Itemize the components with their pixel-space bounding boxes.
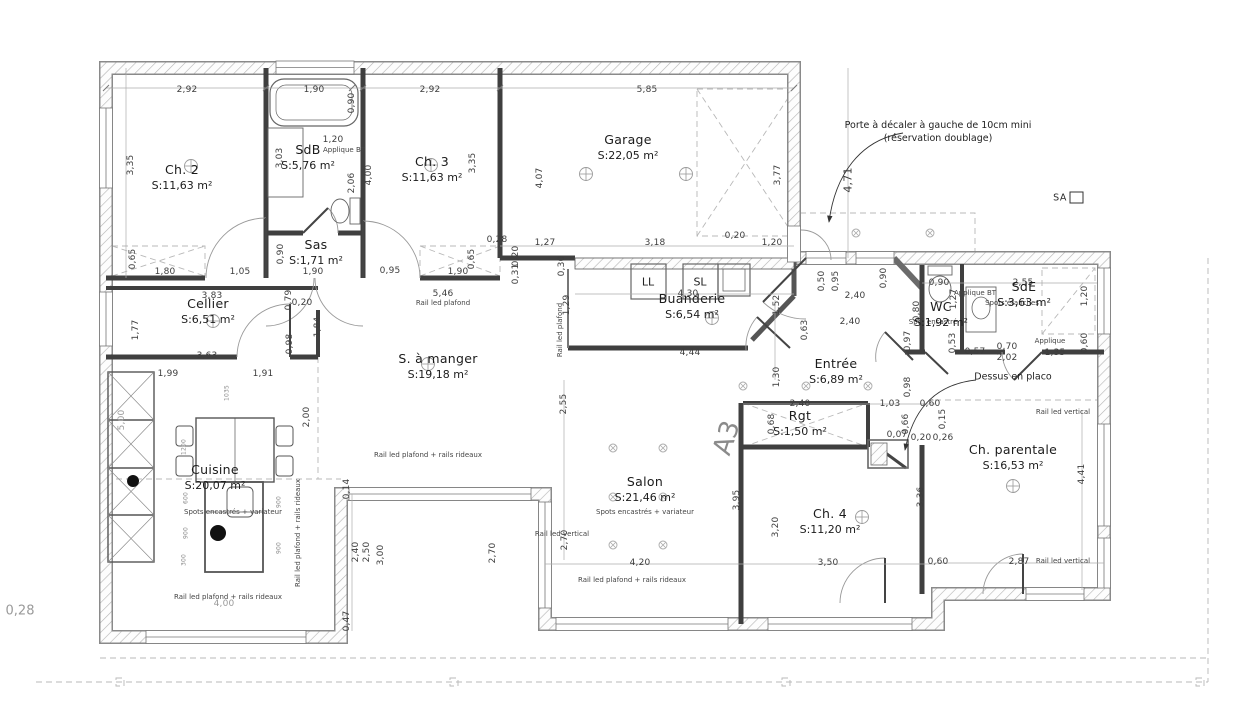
dimension-label: 0,90: [879, 268, 889, 289]
dimension-label: 5,00: [117, 410, 127, 431]
room-name: Cuisine: [185, 462, 246, 479]
room-label: CellierS:6,51 m²: [181, 296, 235, 328]
dimension-label: 0,60: [920, 399, 941, 409]
dimension-label: 3,20: [771, 517, 781, 538]
room-name: Buanderie: [659, 291, 726, 308]
dimension-label: 0,95: [380, 266, 401, 276]
note-label: Rail led plafond + rails rideaux: [174, 593, 282, 601]
room-name: Ch. 2: [152, 162, 213, 179]
dimension-label: 3,77: [773, 165, 783, 186]
dimension-label: 3,36: [916, 487, 926, 508]
dimension-label: 2,92: [420, 85, 441, 95]
room-area: S:3,63 m²: [997, 296, 1051, 311]
dimension-label: 1,84: [313, 317, 323, 338]
dimension-label: 0,15: [938, 409, 948, 430]
dimension-label: 1,90: [448, 267, 469, 277]
room-name: SdB: [281, 142, 335, 159]
room-area: S:1,92 m²: [914, 316, 968, 331]
room-area: S:11,63 m²: [402, 171, 463, 186]
room-label: SasS:1,71 m²: [289, 237, 343, 269]
room-name: SdE: [997, 279, 1051, 296]
dimension-label: 0,47: [342, 611, 352, 632]
room-area: S:6,89 m²: [809, 373, 863, 388]
dimension-label: 2,40: [840, 317, 861, 327]
dimension-label: 3,95: [732, 490, 742, 511]
dimension-label: 1,30: [772, 367, 782, 388]
margin-dimension-label: 0,28: [6, 604, 35, 619]
dimension-label: 0,90: [276, 244, 286, 265]
dimension-label: 2,40: [845, 291, 866, 301]
door-offset-note-line2: (réservation doublage): [845, 133, 1032, 146]
note-label: Rail led vertical: [1036, 408, 1090, 416]
dimension-label: 0,98: [285, 334, 295, 355]
dimension-label: 0,26: [933, 433, 954, 443]
dimension-label: 2,87: [1009, 557, 1030, 567]
room-area: S:20,07 m²: [185, 479, 246, 494]
room-area: S:11,20 m²: [800, 523, 861, 538]
dimension-label: 4,00: [364, 165, 374, 186]
note-label: Spots encastrés + variateur: [596, 508, 694, 516]
room-label: Ch. 2S:11,63 m²: [152, 162, 213, 194]
dimension-label: 1,52: [772, 295, 782, 316]
note-label: Rail led vertical: [1036, 557, 1090, 565]
dimension-label: 1035: [224, 385, 231, 401]
dimension-label: 0,20: [725, 231, 746, 241]
dimension-label: 2,70: [488, 543, 498, 564]
room-label: Ch. 3S:11,63 m²: [402, 154, 463, 186]
room-label: SdES:3,63 m²: [997, 279, 1051, 311]
dimension-label: 2,00: [302, 407, 312, 428]
note-label: Rail led plafond: [416, 299, 470, 307]
room-name: Garage: [598, 132, 659, 149]
dimension-label: 3,63: [197, 351, 218, 361]
note-label: Dessus en placo: [974, 372, 1051, 385]
dimension-label: SL: [693, 276, 706, 289]
dimension-label: 0,90: [347, 93, 357, 114]
room-name: S. à manger: [398, 351, 477, 368]
room-name: Rgt: [773, 408, 827, 425]
dimension-label: 3,18: [645, 238, 666, 248]
dimension-label: 0,65: [467, 249, 477, 270]
room-name: Ch. 4: [800, 506, 861, 523]
dimension-label: 5,46: [433, 289, 454, 299]
dimension-label: 1,20: [762, 238, 783, 248]
dimension-label: 0,98: [903, 377, 913, 398]
room-name: Ch. parentale: [969, 442, 1057, 459]
dimension-label: 1,03: [880, 399, 901, 409]
room-label: SdBS:5,76 m²: [281, 142, 335, 174]
room-area: S:19,18 m²: [398, 368, 477, 383]
note-label: Spots encastrés + variateur: [184, 508, 282, 516]
label-layer: Porte à décaler à gauche de 10cm mini (r…: [0, 0, 1240, 707]
dimension-label: 0,60: [928, 557, 949, 567]
dimension-label: 4,44: [680, 348, 701, 358]
floorplan-page: Porte à décaler à gauche de 10cm mini (r…: [0, 0, 1240, 707]
note-label: Rail led plafond + rails rideaux: [578, 576, 686, 584]
room-name: WC: [914, 299, 968, 316]
dimension-label: 0,53: [948, 333, 958, 354]
dimension-label: 1,91: [253, 369, 274, 379]
dimension-label: 1,90: [304, 85, 325, 95]
dimension-label: 3,35: [468, 153, 478, 174]
dimension-label: 0,20: [911, 433, 932, 443]
dimension-label: 3,35: [126, 155, 136, 176]
dimension-label: 1,77: [131, 320, 141, 341]
dimension-label: 2,02: [997, 353, 1018, 363]
dimension-label: 0,31: [511, 264, 521, 285]
dimension-label: 0,20: [292, 298, 313, 308]
room-label: BuanderieS:6,54 m²: [659, 291, 726, 323]
note-label: Applique: [1035, 337, 1066, 345]
dimension-label: 900: [183, 527, 190, 539]
room-name: Salon: [615, 474, 676, 491]
room-name: Entrée: [809, 356, 863, 373]
dimension-label: 0,57: [965, 347, 986, 357]
room-area: S:1,50 m²: [773, 425, 827, 440]
dimension-label: 1200: [181, 439, 188, 455]
dimension-label: 4,41: [1077, 464, 1087, 485]
dimension-label: 1,80: [155, 267, 176, 277]
dimension-label: 2,40: [351, 542, 361, 563]
dimension-label: 3,00: [376, 545, 386, 566]
room-area: S:5,76 m²: [281, 159, 335, 174]
note-label: Rail led plafond: [556, 303, 564, 357]
room-area: S:22,05 m²: [598, 149, 659, 164]
dimension-label: 0,90: [929, 278, 950, 288]
room-label: Ch. parentaleS:16,53 m²: [969, 442, 1057, 474]
door-offset-note-line1: Porte à décaler à gauche de 10cm mini: [845, 120, 1032, 133]
dimension-label: 0,14: [342, 479, 352, 500]
room-label: EntréeS:6,89 m²: [809, 356, 863, 388]
dimension-label: 0,50: [817, 271, 827, 292]
dimension-label: 2,92: [177, 85, 198, 95]
dimension-label: 0,70: [997, 342, 1018, 352]
dimension-label: 0,30: [557, 256, 567, 277]
room-name: Cellier: [181, 296, 235, 313]
room-area: S:1,71 m²: [289, 254, 343, 269]
room-name: Sas: [289, 237, 343, 254]
dimension-label: 1,35: [1045, 348, 1066, 358]
dimension-label: 0,60: [1080, 333, 1090, 354]
dimension-label: 0,28: [487, 235, 508, 245]
dimension-label: 2,50: [362, 542, 372, 563]
dimension-label: 0,63: [800, 320, 810, 341]
dimension-label: 5,85: [637, 85, 658, 95]
dimension-label: 300: [181, 554, 188, 566]
dimension-label: 3,50: [818, 558, 839, 568]
dimension-label: 1,99: [158, 369, 179, 379]
room-name: Ch. 3: [402, 154, 463, 171]
note-label: Rail led plafond + rails rideaux: [294, 479, 302, 587]
dimension-label: 4,71: [842, 167, 855, 192]
note-label: Rail led vertical: [535, 530, 589, 538]
dimension-label: 900: [276, 542, 283, 554]
dimension-label: LL: [642, 276, 654, 289]
dimension-label: 0,95: [831, 271, 841, 292]
dimension-label: 2,55: [559, 394, 569, 415]
room-label: Ch. 4S:11,20 m²: [800, 506, 861, 538]
door-offset-note: Porte à décaler à gauche de 10cm mini (r…: [845, 120, 1032, 146]
dimension-label: 2,06: [347, 173, 357, 194]
room-label: GarageS:22,05 m²: [598, 132, 659, 164]
room-label: CuisineS:20,07 m²: [185, 462, 246, 494]
dimension-label: 4,07: [535, 168, 545, 189]
room-label: SalonS:21,46 m²: [615, 474, 676, 506]
note-label: Rail led plafond + rails rideaux: [374, 451, 482, 459]
dimension-label: 1,20: [1080, 286, 1090, 307]
dimension-label: 900: [276, 496, 283, 508]
room-area: S:6,51 m²: [181, 313, 235, 328]
dimension-label: 0,97: [903, 331, 913, 352]
room-area: S:21,46 m²: [615, 491, 676, 506]
room-area: S:16,53 m²: [969, 459, 1057, 474]
dimension-label: 0,07: [887, 430, 908, 440]
dimension-label: 1,05: [230, 267, 251, 277]
room-label: WCS:1,92 m²: [914, 299, 968, 331]
dimension-label: 4,20: [630, 558, 651, 568]
sa-reference-label: SA: [1053, 193, 1067, 204]
dimension-label: 0,65: [128, 249, 138, 270]
room-label: RgtS:1,50 m²: [773, 408, 827, 440]
dimension-label: 1,27: [535, 238, 556, 248]
room-area: S:6,54 m²: [659, 308, 726, 323]
section-a3-label: A3: [707, 417, 746, 459]
room-label: S. à mangerS:19,18 m²: [398, 351, 477, 383]
room-area: S:11,63 m²: [152, 179, 213, 194]
note-label: Applique BT: [954, 289, 996, 297]
